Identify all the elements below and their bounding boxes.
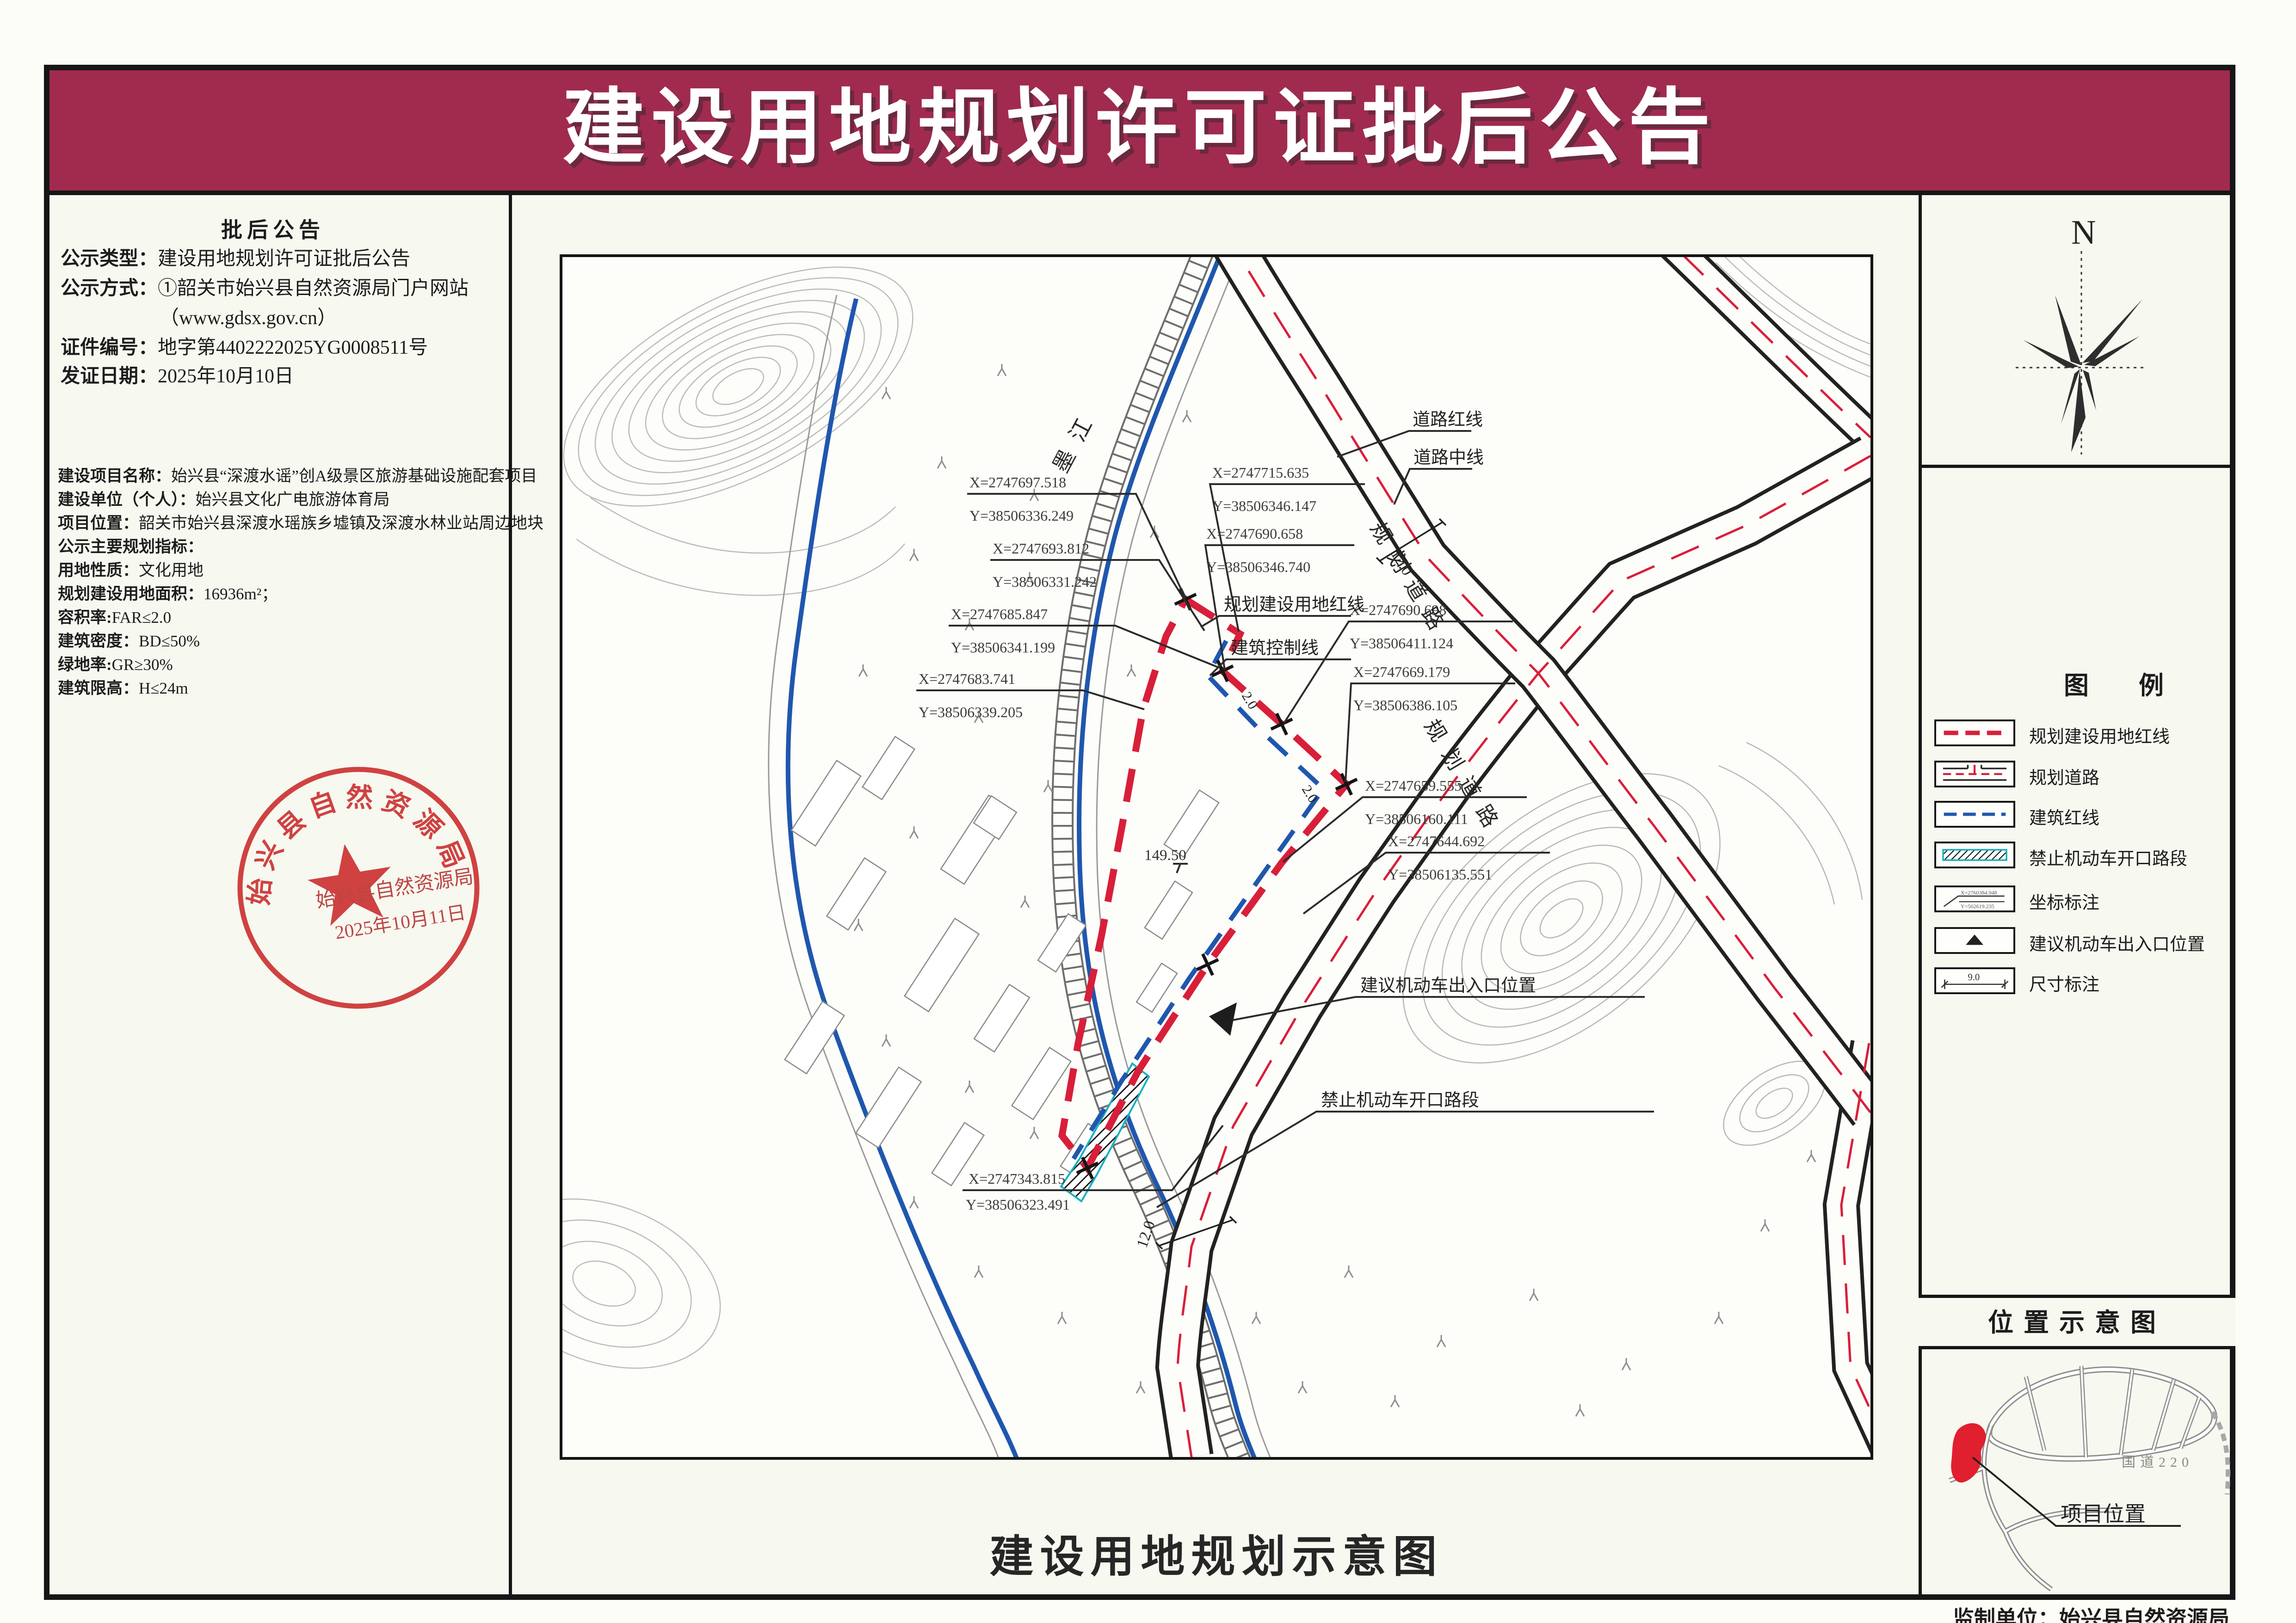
project-row: 建筑限高：H≤24m	[58, 675, 188, 699]
legend-symbol-planned-road	[1934, 761, 2015, 787]
label-dim-12: 12.0	[1134, 1218, 1159, 1250]
legend-item: 禁止机动车开口路段	[1934, 842, 2240, 869]
title-banner: 建设用地规划许可证批后公告	[44, 65, 2235, 195]
row-value: （www.gdsx.gov.cn）	[160, 307, 337, 329]
official-seal: 始兴县自然资源局 始兴县自然资源局 2025年10月11日	[205, 734, 512, 1041]
row-value: ①韶关市始兴县自然资源局门户网站	[158, 278, 469, 299]
coord-y: Y=38506135.551	[1388, 866, 1492, 883]
legend-item: 9.0 尺寸标注	[1934, 967, 2240, 995]
coord-x: X=2747683.741	[919, 670, 1015, 687]
legend-label: 禁止机动车开口路段	[2029, 844, 2187, 870]
coord-y: Y=38506160.111	[1365, 811, 1468, 827]
notice-row: 公示类型：建设用地规划许可证批后公告	[61, 243, 410, 271]
label-entrance: 建议机动车出入口位置	[1360, 976, 1536, 996]
coord-y: Y=38506386.105	[1353, 697, 1457, 713]
divider-right-panel	[1919, 193, 1922, 1600]
notice-row: 发证日期：2025年10月10日	[61, 360, 294, 388]
row-label: 绿地率:	[58, 656, 112, 674]
label-building-control: 建筑控制线	[1231, 639, 1319, 658]
legend-symbol-coordinate: X=2760384.948 Y=502619.235	[1934, 885, 2015, 912]
coord-x: X=2747715.635	[1212, 464, 1309, 481]
legend-symbol-site-redline	[1934, 719, 2015, 746]
legend-symbol-building-redline	[1934, 801, 2015, 828]
project-row: 建设项目名称：始兴县“深渡水谣”创A级景区旅游基础设施配套项目	[58, 463, 537, 486]
row-value: 始兴县“深渡水谣”创A级景区旅游基础设施配套项目	[171, 467, 537, 485]
divider-north-legend	[1919, 465, 2235, 468]
row-value: 2025年10月10日	[158, 366, 294, 387]
contour-hill-bottomleft	[560, 1168, 744, 1398]
legend-sym-dim: 9.0	[1968, 972, 1980, 983]
coord-x: X=2747693.812	[993, 540, 1089, 557]
label-project-location: 项目位置	[2061, 1502, 2146, 1526]
row-value: 16936m²；	[204, 585, 278, 603]
notice-page: 建设用地规划许可证批后公告 批后公告 公示类型：建设用地规划许可证批后公告 公示…	[0, 0, 2296, 1623]
planning-map: X=2747697.518 Y=38506336.249 X=2747693.8…	[560, 254, 1873, 1460]
coord-x: X=2747690.658	[1206, 525, 1303, 542]
compass-blades	[2023, 295, 2142, 452]
project-row: 容积率:FAR≤2.0	[58, 604, 171, 628]
label-road-centerline: 道路中线	[1413, 448, 1484, 467]
entrance-triangle-icon	[1209, 1002, 1237, 1036]
row-label: 发证日期：	[61, 366, 158, 387]
sketch-roads	[1950, 1366, 2228, 1589]
project-row: 建筑密度：BD≤50%	[58, 628, 200, 652]
project-row: 规划建设用地面积：16936m²；	[58, 581, 278, 604]
contour-hill-topleft	[560, 254, 950, 596]
legend-item: X=2760384.948 Y=502619.235 坐标标注	[1934, 885, 2240, 913]
legend-symbol-entrance	[1934, 927, 2015, 954]
legend-item: 规划建设用地红线	[1934, 719, 2240, 747]
label-elevation: 149.50	[1144, 847, 1186, 864]
project-row: 公示主要规划指标：	[58, 534, 204, 557]
coord-x: X=2747685.847	[951, 606, 1048, 622]
legend-label: 规划建设用地红线	[2029, 722, 2170, 748]
row-label: 建设单位（个人）：	[58, 491, 196, 509]
project-row: 项目位置：韶关市始兴县深渡水瑶族乡墟镇及深渡水林业站周边地块	[58, 510, 543, 534]
project-row: 用地性质：文化用地	[58, 557, 204, 581]
page-title: 建设用地规划许可证批后公告	[49, 70, 2230, 186]
north-label: N	[2071, 214, 2096, 252]
legend-label: 建议机动车出入口位置	[2029, 930, 2205, 955]
legend-item: 建筑红线	[1934, 801, 2240, 829]
row-value: 文化用地	[139, 561, 204, 579]
row-value: BD≤50%	[139, 632, 200, 650]
row-label: 公示主要规划指标：	[58, 538, 204, 556]
coord-y: Y=38506346.147	[1212, 498, 1316, 514]
coord-y: Y=38506331.242	[993, 573, 1097, 590]
divider-left-panel	[509, 193, 512, 1600]
project-row: 建设单位（个人）：始兴县文化广电旅游体育局	[58, 486, 390, 510]
row-label: 规划建设用地面积：	[58, 585, 204, 603]
coord-x: X=2747669.179	[1353, 664, 1450, 680]
label-road-redline: 道路红线	[1413, 410, 1483, 430]
coord-x: X=2747343.815	[969, 1170, 1065, 1187]
legend-item: 规划道路	[1934, 761, 2240, 788]
location-sketch: 项目位置 国道220	[1922, 1351, 2232, 1595]
coord-y: Y=38506336.249	[969, 507, 1074, 524]
seal-date: 2025年10月11日	[333, 902, 467, 943]
north-arrow: N	[2003, 201, 2160, 462]
notice-heading: 批后公告	[44, 213, 502, 244]
legend-label: 坐标标注	[2029, 888, 2099, 914]
coord-x: X=2747659.555	[1365, 777, 1462, 794]
legend-item: 建议机动车出入口位置	[1934, 927, 2240, 955]
row-value: FAR≤2.0	[112, 609, 171, 627]
planned-roads	[1178, 254, 1873, 1457]
label-national-road: 国道220	[2122, 1455, 2193, 1470]
row-label: 建设项目名称：	[58, 467, 171, 485]
row-label: 建筑限高：	[58, 679, 139, 697]
legend-sym-y: Y=502619.235	[1961, 903, 1994, 910]
row-label: 项目位置：	[58, 514, 139, 532]
row-value: 建设用地规划许可证批后公告	[158, 248, 410, 270]
row-label: 证件编号：	[61, 337, 158, 358]
row-value: 地字第4402222025YG0008511号	[158, 337, 428, 358]
row-label: 用地性质：	[58, 561, 139, 579]
coord-y: Y=38506341.199	[951, 639, 1055, 656]
row-value: H≤24m	[139, 679, 188, 697]
coord-y: Y=38506346.740	[1206, 559, 1310, 575]
row-label: 容积率:	[58, 609, 112, 627]
coord-y: Y=38506323.491	[966, 1196, 1070, 1213]
legend-symbol-dimension: 9.0	[1934, 967, 2015, 994]
row-label: 公示方式：	[61, 278, 158, 299]
river-blue-line	[788, 299, 1020, 1460]
row-value: GR≥30%	[112, 656, 173, 674]
row-label: 公示类型：	[61, 248, 158, 270]
row-label: 建筑密度：	[58, 632, 139, 650]
row-value: 韶关市始兴县深渡水瑶族乡墟镇及深渡水林业站周边地块	[139, 514, 543, 532]
coord-x: X=2747697.518	[969, 474, 1066, 491]
project-row: 绿地率:GR≥30%	[58, 652, 173, 675]
notice-row: （www.gdsx.gov.cn）	[160, 302, 337, 330]
legend-label: 建筑红线	[2029, 804, 2099, 829]
legend-label: 尺寸标注	[2029, 970, 2099, 996]
label-site-redline: 规划建设用地红线	[1224, 595, 1364, 615]
legend-sym-x: X=2760384.948	[1961, 890, 1997, 896]
notice-row: 证件编号：地字第4402222025YG0008511号	[61, 332, 428, 360]
coord-y: Y=38506339.205	[919, 704, 1023, 720]
coord-x: X=2747644.692	[1388, 833, 1485, 849]
location-title: 位置示意图	[1919, 1295, 2235, 1349]
legend-symbol-no-opening	[1934, 842, 2015, 868]
label-river: 墨江	[1049, 403, 1103, 477]
label-no-opening: 禁止机动车开口路段	[1321, 1091, 1479, 1110]
producer-line: 监制单位：始兴县自然资源局	[1804, 1602, 2229, 1623]
row-value: 始兴县文化广电旅游体育局	[196, 491, 390, 509]
map-caption: 建设用地规划示意图	[560, 1521, 1873, 1585]
legend-label: 规划道路	[2029, 763, 2099, 789]
legend-title: 图 例	[2012, 665, 2216, 701]
project-location-marker	[1951, 1423, 1986, 1482]
label-dim-2: 2.0	[1299, 783, 1321, 805]
notice-row: 公示方式：①韶关市始兴县自然资源局门户网站	[61, 272, 469, 301]
